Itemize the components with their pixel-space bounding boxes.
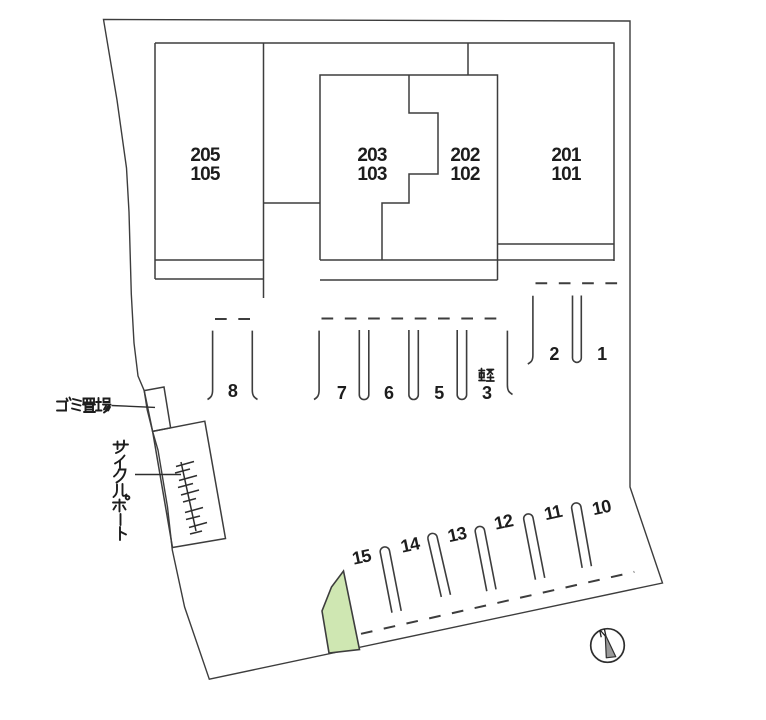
svg-text:203: 203 [357,145,387,166]
svg-text:12: 12 [492,510,515,534]
svg-text:205: 205 [190,145,221,166]
svg-text:5: 5 [434,383,444,403]
svg-text:202: 202 [450,145,480,166]
svg-text:101: 101 [551,164,582,185]
svg-text:14: 14 [399,533,422,557]
svg-text:15: 15 [350,545,373,569]
svg-text:103: 103 [357,164,387,185]
svg-text:6: 6 [384,383,394,403]
svg-text:2: 2 [549,344,559,364]
svg-text:10: 10 [590,496,613,520]
svg-text:7: 7 [337,383,347,403]
svg-text:3: 3 [482,383,492,403]
svg-text:8: 8 [228,381,238,401]
svg-text:102: 102 [450,164,480,185]
svg-text:201: 201 [551,145,582,166]
svg-text:13: 13 [446,523,469,547]
svg-text:11: 11 [542,501,564,524]
svg-text:1: 1 [597,344,607,364]
svg-text:105: 105 [190,164,221,185]
